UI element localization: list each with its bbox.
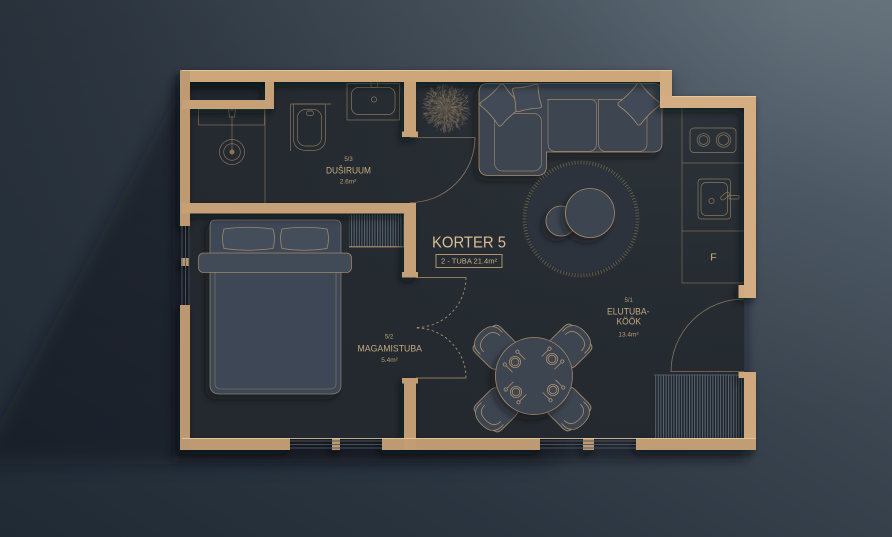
svg-text:5/2: 5/2	[385, 335, 394, 341]
svg-text:KÖÖK: KÖÖK	[617, 317, 642, 327]
svg-text:5.4m²: 5.4m²	[381, 357, 398, 364]
svg-text:5/3: 5/3	[344, 157, 353, 163]
svg-text:MAGAMISTUBA: MAGAMISTUBA	[358, 344, 423, 354]
svg-text:2.6m²: 2.6m²	[340, 179, 357, 186]
svg-text:5/1: 5/1	[625, 298, 634, 304]
svg-text:DUŠIRUUM: DUŠIRUUM	[326, 166, 371, 176]
svg-text:13.4m²: 13.4m²	[618, 332, 639, 339]
svg-text:F: F	[710, 252, 716, 264]
svg-text:2 - TUBA 21.4m²: 2 - TUBA 21.4m²	[441, 257, 498, 266]
svg-text:ELUTUBA-: ELUTUBA-	[607, 307, 650, 317]
svg-text:KORTER 5: KORTER 5	[432, 235, 506, 252]
